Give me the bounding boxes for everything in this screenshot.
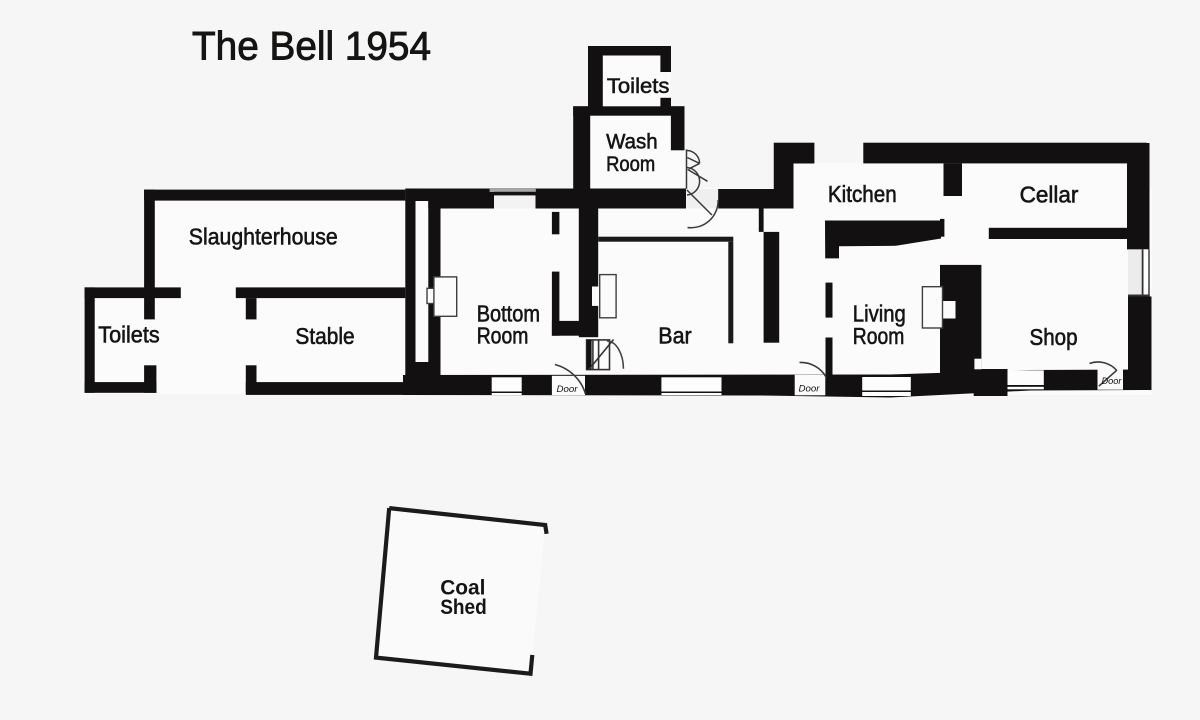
svg-text:Bar: Bar bbox=[658, 322, 692, 348]
svg-text:The Bell 1954: The Bell 1954 bbox=[192, 25, 431, 69]
svg-text:Stable: Stable bbox=[295, 323, 354, 349]
svg-text:Door: Door bbox=[557, 384, 579, 395]
svg-text:Wash: Wash bbox=[606, 131, 658, 154]
svg-text:Slaughterhouse: Slaughterhouse bbox=[189, 224, 338, 250]
svg-text:Room: Room bbox=[853, 323, 905, 349]
svg-text:Toilets: Toilets bbox=[98, 322, 159, 348]
svg-text:Room: Room bbox=[477, 322, 529, 348]
svg-text:Kitchen: Kitchen bbox=[828, 181, 897, 207]
svg-text:Shed: Shed bbox=[440, 596, 487, 619]
svg-text:Door: Door bbox=[1102, 376, 1123, 387]
svg-text:Shop: Shop bbox=[1030, 324, 1078, 350]
svg-text:Door: Door bbox=[799, 383, 821, 394]
svg-text:Room: Room bbox=[606, 153, 655, 176]
svg-text:Cellar: Cellar bbox=[1020, 181, 1079, 207]
svg-text:Toilets: Toilets bbox=[607, 75, 670, 98]
